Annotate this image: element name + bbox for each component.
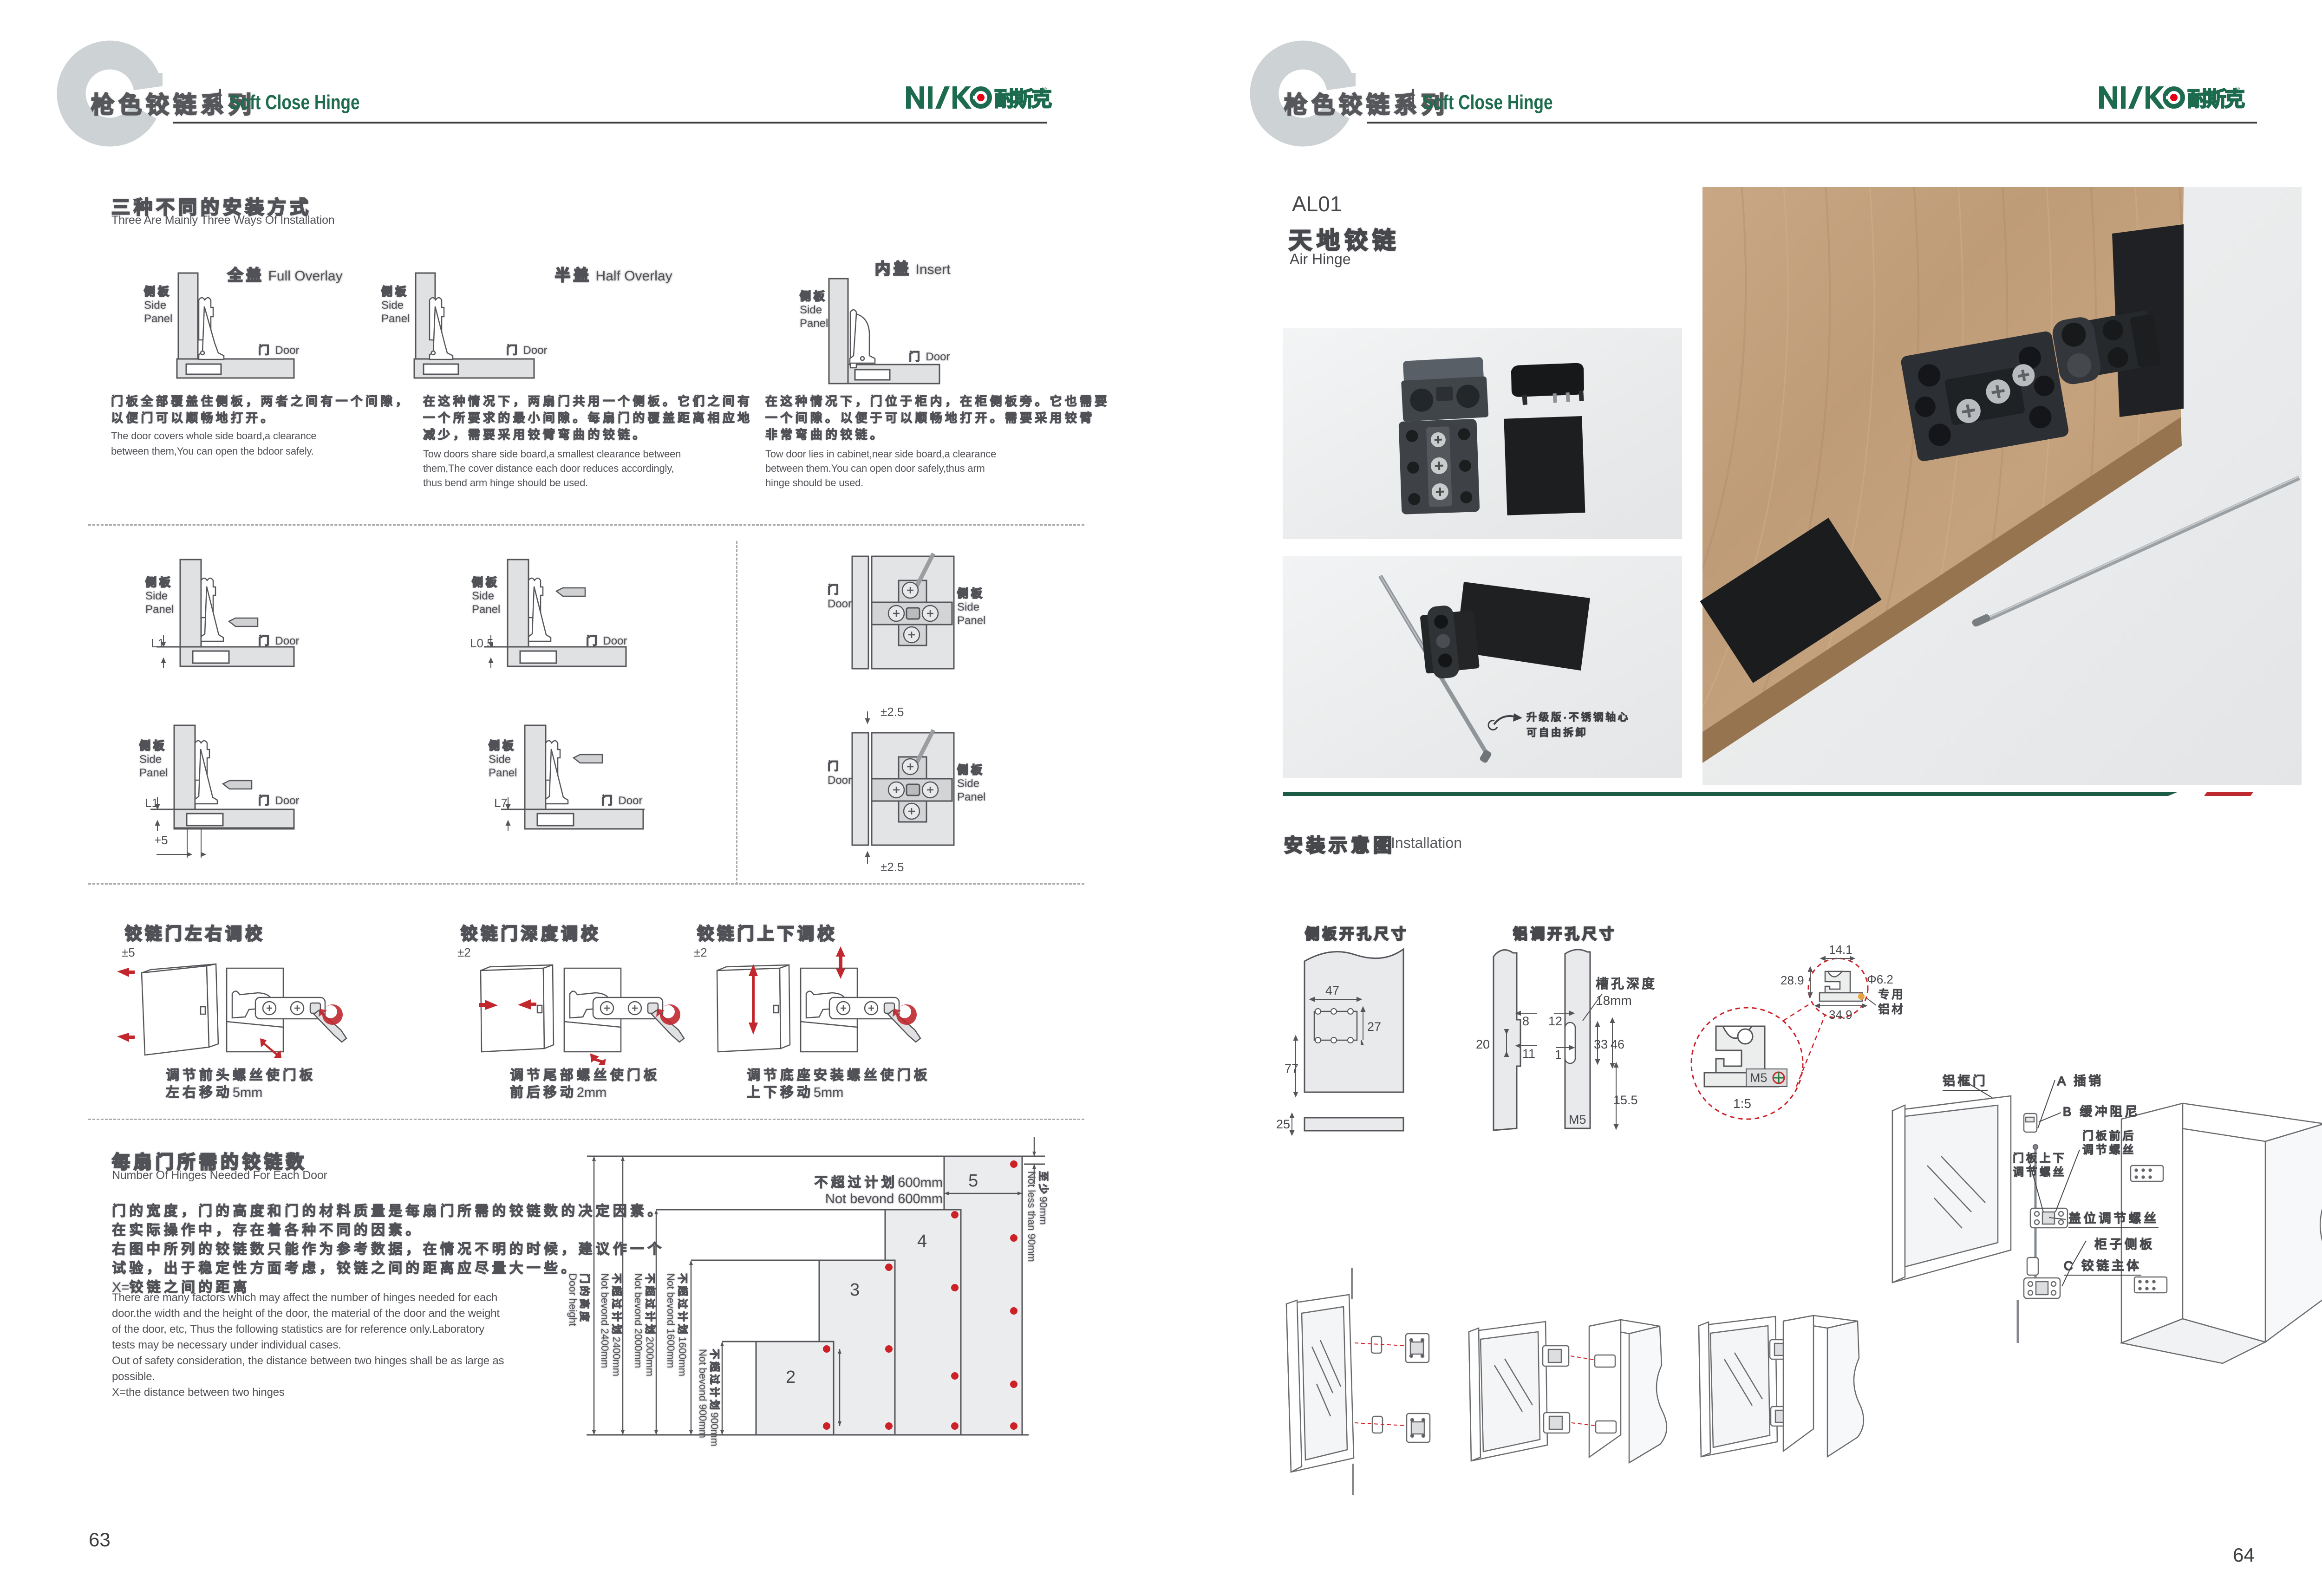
svg-text:槽孔深度: 槽孔深度 <box>1596 977 1657 991</box>
svg-text:77: 77 <box>1285 1062 1298 1075</box>
svg-text:27: 27 <box>1367 1020 1381 1034</box>
svg-text:®: ® <box>2235 86 2240 94</box>
svg-text:47: 47 <box>1325 984 1339 997</box>
svg-text:1:5: 1:5 <box>1733 1096 1751 1111</box>
svg-text:4: 4 <box>917 1231 927 1251</box>
svg-text:14.1: 14.1 <box>1829 943 1852 957</box>
svg-text:M5: M5 <box>1569 1113 1586 1127</box>
svg-text:专用: 专用 <box>1878 988 1905 1001</box>
svg-text:3: 3 <box>850 1280 860 1300</box>
svg-text:18mm: 18mm <box>1596 993 1632 1008</box>
svg-text:25: 25 <box>1276 1117 1290 1131</box>
svg-text:46: 46 <box>1611 1037 1624 1051</box>
svg-text:11: 11 <box>1522 1047 1535 1061</box>
svg-text:15.5: 15.5 <box>1613 1093 1638 1107</box>
svg-text:33: 33 <box>1594 1037 1608 1051</box>
svg-text:1: 1 <box>1555 1048 1562 1062</box>
svg-text:®: ® <box>1042 86 1047 94</box>
svg-text:2: 2 <box>786 1368 796 1387</box>
svg-text:M5: M5 <box>1750 1071 1768 1085</box>
svg-text:28.9: 28.9 <box>1781 973 1804 987</box>
svg-text:34.9: 34.9 <box>1829 1008 1852 1022</box>
svg-text:8: 8 <box>1522 1014 1529 1028</box>
svg-text:20: 20 <box>1476 1037 1490 1051</box>
svg-text:铝材: 铝材 <box>1878 1003 1905 1016</box>
svg-text:12: 12 <box>1548 1014 1562 1028</box>
svg-text:Φ6.2: Φ6.2 <box>1867 972 1893 986</box>
svg-text:5: 5 <box>968 1171 978 1191</box>
